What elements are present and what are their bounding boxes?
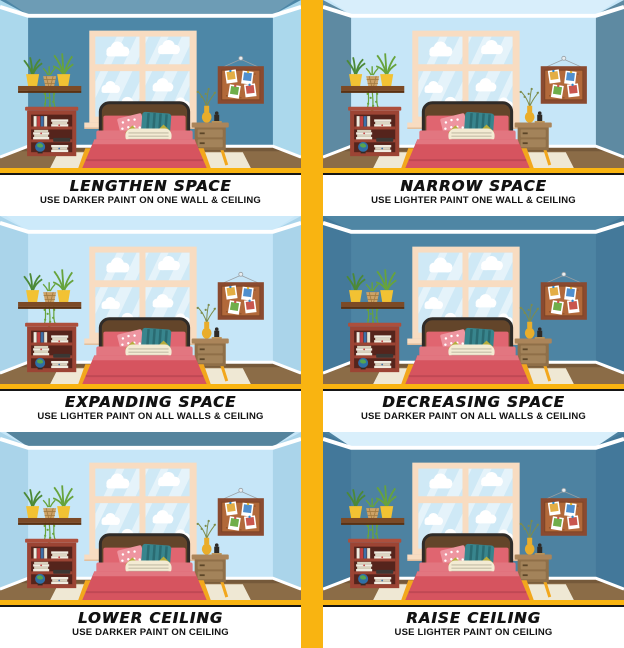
scene-decreasing-space [323, 216, 624, 384]
photo [567, 83, 580, 97]
panel-subtitle: USE LIGHTER PAINT ON ALL WALLS & CEILING [0, 411, 301, 423]
photo [228, 516, 241, 531]
paint-space-infographic: LENGTHEN SPACE USE DARKER PAINT ON ONE W… [0, 0, 624, 648]
panel-title: DECREASING SPACE [323, 394, 624, 411]
right-wall [273, 216, 301, 374]
right-wall [596, 432, 624, 590]
panel-subtitle: USE DARKER PAINT ON ALL WALLS & CEILING [323, 411, 624, 423]
right-wall [273, 432, 301, 590]
photo [551, 516, 564, 531]
panel-subtitle: USE DARKER PAINT ON CEILING [0, 627, 301, 639]
panel-title: EXPANDING SPACE [0, 394, 301, 411]
nail [562, 272, 566, 276]
bedroom-illustration [0, 432, 301, 600]
plant-pot [380, 290, 393, 302]
divider-strip [323, 384, 624, 391]
plant-pot [380, 506, 393, 518]
caption-narrow-space: NARROW SPACE USE LIGHTER PAINT ONE WALL … [323, 175, 624, 216]
panel-subtitle: USE LIGHTER PAINT ONE WALL & CEILING [323, 195, 624, 207]
nail [239, 488, 243, 492]
right-wall [596, 0, 624, 158]
photo [548, 501, 561, 516]
center-divider [301, 0, 323, 648]
ceiling [329, 432, 618, 447]
shelf-plank [341, 518, 404, 523]
shelf-plank [18, 86, 81, 91]
panel-title: NARROW SPACE [323, 178, 624, 195]
photo [551, 84, 564, 99]
left-wall [0, 432, 28, 590]
plant-pot [57, 74, 70, 86]
panel-subtitle: USE LIGHTER PAINT ON CEILING [323, 627, 624, 639]
left-wall [0, 0, 28, 158]
plant-pot [349, 290, 362, 302]
left-wall [323, 0, 351, 158]
divider-strip [323, 600, 624, 607]
photo [228, 84, 241, 99]
nail [562, 56, 566, 60]
photo [244, 299, 257, 313]
panel-title: RAISE CEILING [323, 610, 624, 627]
left-wall [0, 216, 28, 374]
bedroom-illustration [323, 432, 624, 600]
plant-pot [26, 290, 39, 302]
nail [239, 272, 243, 276]
photo [241, 286, 254, 300]
divider-strip [0, 600, 301, 607]
shelf-plank [341, 302, 404, 307]
plant-pot [349, 506, 362, 518]
ceiling [329, 0, 618, 15]
right-wall [596, 216, 624, 374]
photo [567, 299, 580, 313]
scene-lower-ceiling [0, 432, 301, 600]
nail [239, 56, 243, 60]
photo [225, 69, 238, 84]
nail [562, 488, 566, 492]
ceiling [329, 216, 618, 231]
bookshelf [25, 539, 78, 588]
bookshelf [348, 539, 401, 588]
photo [244, 83, 257, 97]
photo [241, 70, 254, 84]
divider-strip [323, 168, 624, 175]
bedroom-illustration [323, 216, 624, 384]
plant-pot [57, 290, 70, 302]
scene-lengthen-space [0, 0, 301, 168]
bookshelf [25, 107, 78, 156]
photo [548, 285, 561, 300]
bedroom-illustration [0, 0, 301, 168]
bookshelf [25, 323, 78, 372]
bedroom-illustration [323, 0, 624, 168]
photo [244, 515, 257, 529]
left-wall [323, 216, 351, 374]
photo [241, 502, 254, 516]
ceiling [6, 432, 295, 447]
photo [225, 501, 238, 516]
plant-pot [57, 506, 70, 518]
scene-narrow-space [323, 0, 624, 168]
plant-pot [26, 506, 39, 518]
photo [564, 286, 577, 300]
shelf-plank [18, 302, 81, 307]
panel-subtitle: USE DARKER PAINT ON ONE WALL & CEILING [0, 195, 301, 207]
photo [567, 515, 580, 529]
ceiling [6, 0, 295, 15]
divider-strip [0, 384, 301, 391]
shelf-plank [18, 518, 81, 523]
plant-pot [380, 74, 393, 86]
bookshelf [348, 323, 401, 372]
panel-title: LENGTHEN SPACE [0, 178, 301, 195]
ceiling [6, 216, 295, 231]
photo [225, 285, 238, 300]
caption-lower-ceiling: LOWER CEILING USE DARKER PAINT ON CEILIN… [0, 607, 301, 648]
right-wall [273, 0, 301, 158]
photo [564, 502, 577, 516]
left-wall [323, 432, 351, 590]
photo [551, 300, 564, 315]
caption-raise-ceiling: RAISE CEILING USE LIGHTER PAINT ON CEILI… [323, 607, 624, 648]
photo [564, 70, 577, 84]
photo [548, 69, 561, 84]
caption-decreasing-space: DECREASING SPACE USE DARKER PAINT ON ALL… [323, 391, 624, 432]
caption-lengthen-space: LENGTHEN SPACE USE DARKER PAINT ON ONE W… [0, 175, 301, 216]
scene-expanding-space [0, 216, 301, 384]
caption-expanding-space: EXPANDING SPACE USE LIGHTER PAINT ON ALL… [0, 391, 301, 432]
divider-strip [0, 168, 301, 175]
scene-raise-ceiling [323, 432, 624, 600]
panel-title: LOWER CEILING [0, 610, 301, 627]
photo [228, 300, 241, 315]
plant-pot [26, 74, 39, 86]
bedroom-illustration [0, 216, 301, 384]
bookshelf [348, 107, 401, 156]
shelf-plank [341, 86, 404, 91]
plant-pot [349, 74, 362, 86]
